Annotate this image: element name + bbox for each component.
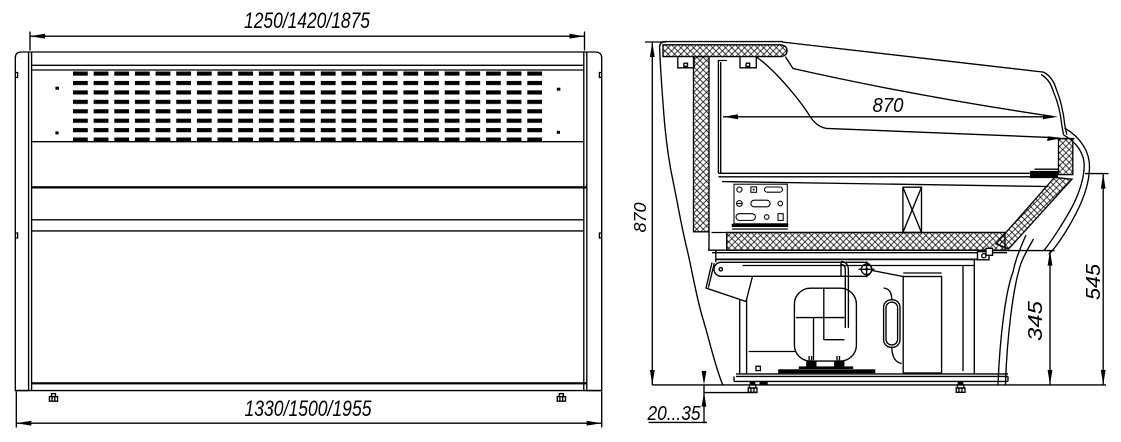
svg-text:870: 870 bbox=[873, 95, 904, 117]
svg-text:870: 870 bbox=[630, 202, 650, 232]
svg-text:545: 545 bbox=[1083, 263, 1105, 300]
svg-text:20...35: 20...35 bbox=[647, 403, 702, 425]
svg-text:1250/1420/1875: 1250/1420/1875 bbox=[244, 8, 371, 33]
svg-text:1330/1500/1955: 1330/1500/1955 bbox=[245, 396, 373, 421]
svg-text:345: 345 bbox=[1025, 300, 1047, 341]
